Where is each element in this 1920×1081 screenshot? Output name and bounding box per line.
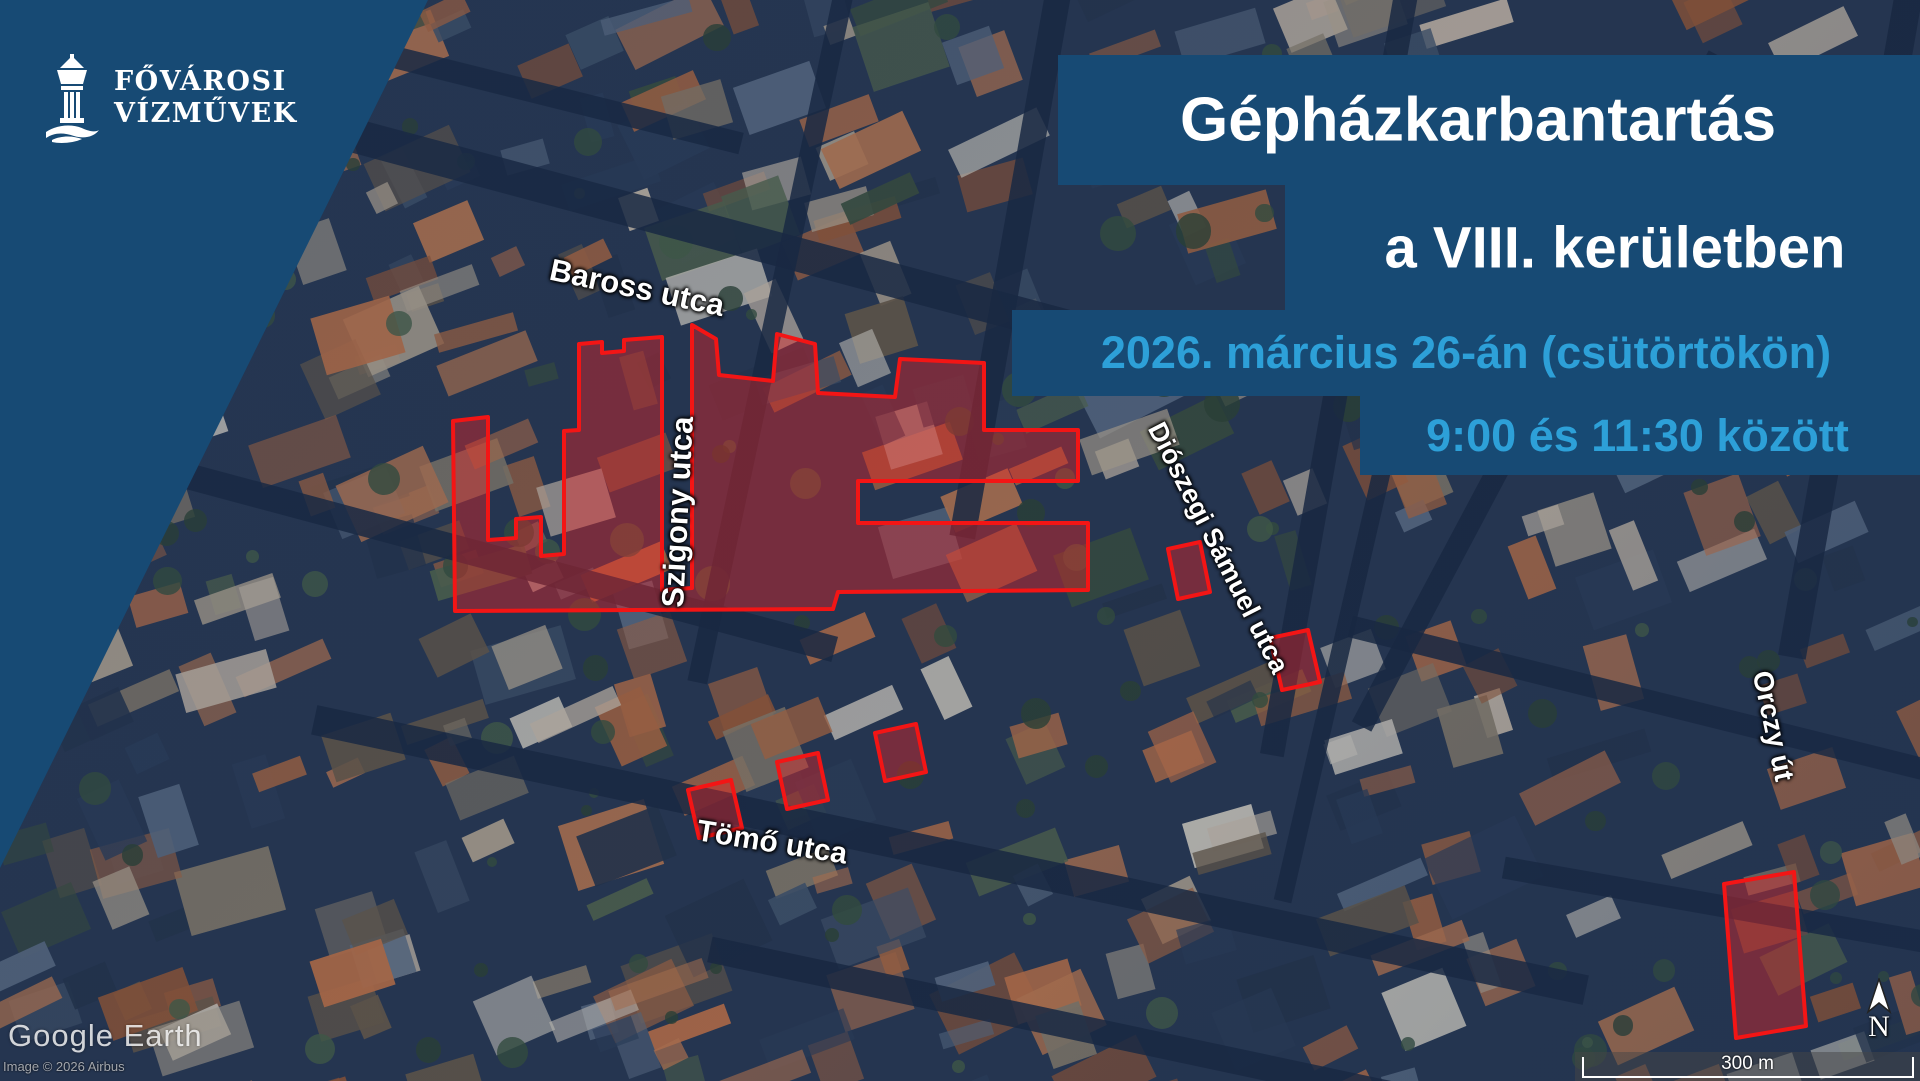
logo-text: FŐVÁROSI VÍZMŰVEK: [114, 66, 298, 130]
headline-date-box: 2026. március 26-án (csütörtökön): [1012, 310, 1920, 396]
scale-line: [1582, 1076, 1914, 1078]
logo-line-1: FŐVÁROSI: [114, 66, 298, 98]
headline-time: 9:00 és 11:30 között: [1380, 410, 1895, 462]
headline-subtitle-box: a VIII. kerületben: [1285, 185, 1920, 310]
scale-label: 300 m: [1575, 1053, 1920, 1075]
north-arrow: N: [1862, 978, 1896, 1040]
north-arrow-icon: [1866, 978, 1892, 1014]
north-label: N: [1862, 1014, 1896, 1040]
headline-title: Gépházkarbantartás: [1180, 85, 1776, 156]
imagery-copyright: Image © 2026 Airbus: [3, 1059, 125, 1074]
logo-line-2: VÍZMŰVEK: [114, 98, 298, 130]
headline-subtitle: a VIII. kerületben: [1340, 214, 1890, 281]
google-earth-watermark: Google Earth: [8, 1018, 203, 1054]
headline-time-box: 9:00 és 11:30 között: [1360, 396, 1920, 475]
fovarosi-vizmuvek-logo: FŐVÁROSI VÍZMŰVEK: [44, 52, 298, 144]
map-scale-bar: 300 m: [1575, 1052, 1920, 1081]
headline-date: 2026. március 26-án (csütörtökön): [1032, 327, 1900, 379]
headline-title-box: Gépházkarbantartás: [1058, 55, 1920, 185]
water-tower-icon: [44, 52, 100, 144]
